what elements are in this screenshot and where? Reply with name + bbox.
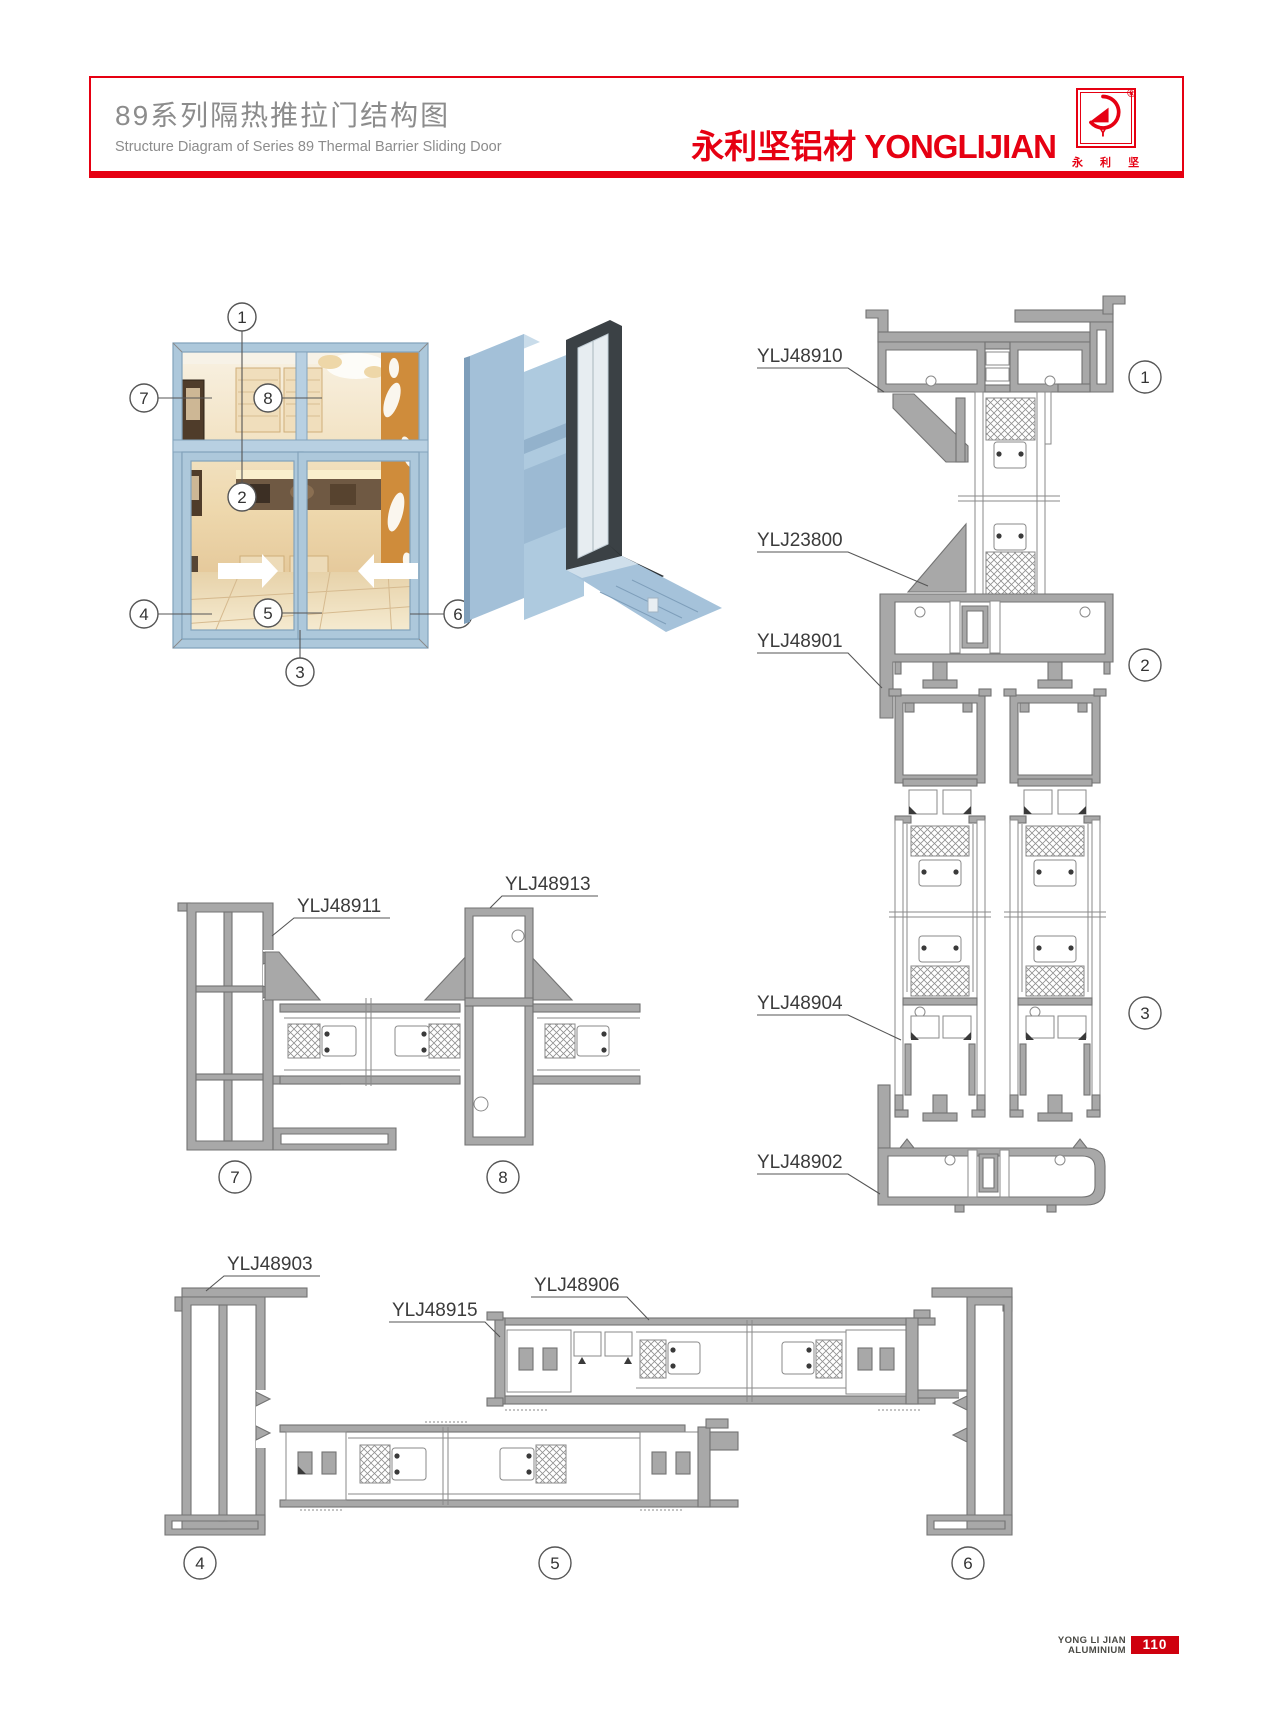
callout-8: 8: [254, 384, 282, 412]
leader-line: [272, 918, 390, 936]
label-ylj48904: YLJ48904: [757, 993, 843, 1014]
sash-section-right: [1004, 689, 1106, 1121]
page-number-badge: 110: [1131, 1636, 1179, 1654]
leader-line: [757, 653, 882, 688]
section-callout-4: 4: [184, 1547, 216, 1579]
door-elevation-figure: 1 7 8 2 4 5 6 3: [130, 303, 472, 686]
label-ylj23800: YLJ23800: [757, 530, 843, 551]
section-callout-6: 6: [952, 1547, 984, 1579]
svg-text:4: 4: [139, 605, 148, 624]
svg-text:3: 3: [1140, 1004, 1149, 1023]
label-ylj48901: YLJ48901: [757, 631, 843, 652]
upper-glazing-section: [958, 392, 1060, 594]
label-ylj48902: YLJ48902: [757, 1152, 843, 1173]
svg-text:6: 6: [963, 1554, 972, 1573]
callout-4: 4: [130, 600, 158, 628]
svg-text:3: 3: [295, 663, 304, 682]
svg-text:2: 2: [1140, 656, 1149, 675]
section-callout-1: 1: [1129, 361, 1161, 393]
right-jamb-profile-bottom: [927, 1288, 1012, 1535]
callout-3: 3: [286, 658, 314, 686]
callout-1: 1: [228, 303, 256, 331]
label-ylj48913: YLJ48913: [505, 874, 591, 895]
section-callout-3: 3: [1129, 997, 1161, 1029]
horizontal-section-top-figure: YLJ48911 YLJ48913 7 8: [178, 874, 640, 1193]
leader-line: [757, 552, 928, 586]
svg-text:5: 5: [550, 1554, 559, 1573]
svg-text:8: 8: [263, 389, 272, 408]
section-callout-7: 7: [219, 1161, 251, 1193]
label-ylj48903: YLJ48903: [227, 1254, 313, 1275]
sash-rail-right: [533, 1004, 640, 1084]
vertical-section-figure: YLJ48910 YLJ23800 YLJ48901 YLJ48904 YLJ4…: [757, 296, 1161, 1212]
svg-text:1: 1: [237, 308, 246, 327]
section-callout-2: 2: [1129, 649, 1161, 681]
label-ylj48915: YLJ48915: [392, 1300, 478, 1321]
label-ylj48911: YLJ48911: [297, 896, 381, 917]
horizontal-section-bottom-figure: YLJ48903 YLJ48915 YLJ48906 4 5 6: [165, 1254, 1012, 1579]
leader-line: [531, 1297, 649, 1320]
bottom-section-callouts: 4 5 6: [184, 1547, 984, 1579]
section-callout-8: 8: [487, 1161, 519, 1193]
label-ylj48910: YLJ48910: [757, 346, 843, 367]
section-callout-5: 5: [539, 1547, 571, 1579]
svg-text:7: 7: [139, 389, 148, 408]
label-ylj48906: YLJ48906: [534, 1275, 620, 1296]
leader-line: [757, 368, 884, 392]
middle-section-labels: YLJ48911 YLJ48913: [272, 874, 598, 936]
middle-section-callouts: 7 8: [219, 1161, 519, 1193]
door-transom-bar: [173, 440, 428, 452]
vertical-section-callouts: 1 2 3: [1129, 361, 1161, 1029]
leader-line: [757, 1015, 901, 1040]
leader-line: [490, 896, 598, 908]
svg-text:5: 5: [263, 604, 272, 623]
sash-section-left: [889, 689, 991, 1121]
footer-brand: YONG LI JIAN ALUMINIUM: [1058, 1636, 1126, 1657]
transom-mullion: [296, 352, 307, 440]
svg-text:7: 7: [230, 1168, 239, 1187]
svg-text:8: 8: [498, 1168, 507, 1187]
callout-2: 2: [228, 483, 256, 511]
callout-5: 5: [254, 599, 282, 627]
diagram-canvas: 1 7 8 2 4 5 6 3: [0, 0, 1277, 1721]
svg-text:1: 1: [1140, 368, 1149, 387]
profile-3d-render: [464, 320, 722, 632]
svg-text:6: 6: [453, 605, 462, 624]
sill-profile: [878, 1085, 1105, 1212]
leader-line: [389, 1322, 500, 1337]
svg-text:4: 4: [195, 1554, 204, 1573]
svg-text:2: 2: [237, 488, 246, 507]
sash-rail-left: [280, 998, 460, 1086]
leader-line: [757, 1174, 880, 1194]
footer-brand-line2: ALUMINIUM: [1058, 1646, 1126, 1656]
lower-sash-rail: [280, 1419, 738, 1510]
callout-7: 7: [130, 384, 158, 412]
